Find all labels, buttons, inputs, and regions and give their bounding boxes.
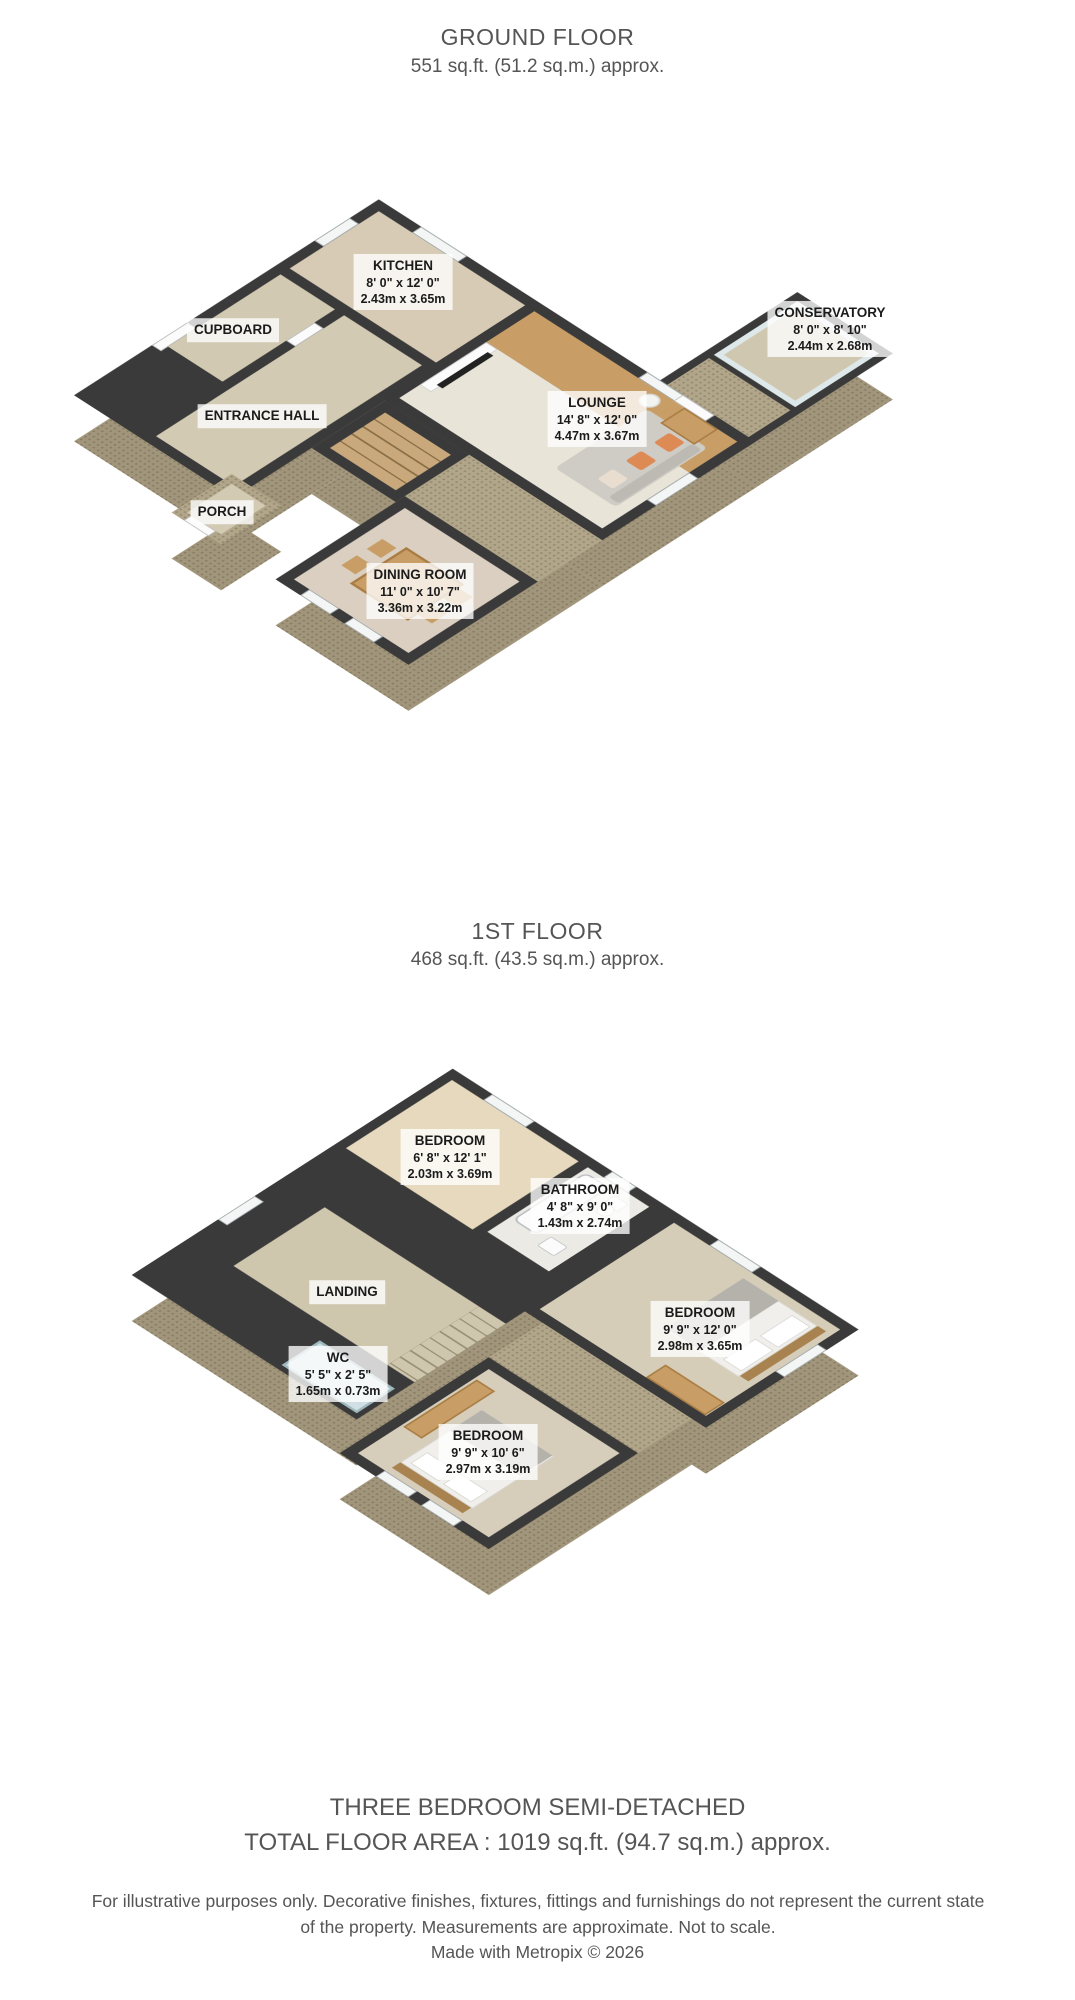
label-wc: WC 5' 5" x 2' 5" 1.65m x 0.73m [289, 1346, 388, 1402]
label-bedroom-right: BEDROOM 9' 9" x 12' 0" 2.98m x 3.65m [651, 1301, 750, 1357]
label-kitchen: KITCHEN 8' 0" x 12' 0" 2.43m x 3.65m [354, 254, 453, 310]
floorplan-page: GROUND FLOOR 551 sq.ft. (51.2 sq.m.) app… [0, 0, 1075, 2000]
metropix-credit: Made with Metropix © 2026 [0, 1942, 1075, 1963]
label-cupboard: CUPBOARD [187, 318, 279, 342]
label-landing: LANDING [309, 1280, 385, 1304]
disclaimer-text: For illustrative purposes only. Decorati… [88, 1888, 988, 1941]
label-dining-room: DINING ROOM 11' 0" x 10' 7" 3.36m x 3.22… [367, 563, 474, 619]
label-bedroom-back: BEDROOM 6' 8" x 12' 1" 2.03m x 3.69m [401, 1129, 500, 1185]
first-floor-title: 1ST FLOOR [0, 918, 1075, 945]
first-floor-subtitle: 468 sq.ft. (43.5 sq.m.) approx. [0, 949, 1075, 971]
ground-floor-plan [170, 0, 770, 738]
label-porch: PORCH [191, 500, 254, 524]
label-bathroom: BATHROOM 4' 8" x 9' 0" 1.43m x 2.74m [531, 1178, 630, 1234]
label-bedroom-front: BEDROOM 9' 9" x 10' 6" 2.97m x 3.19m [439, 1424, 538, 1480]
total-floor-area: TOTAL FLOOR AREA : 1019 sq.ft. (94.7 sq.… [0, 1829, 1075, 1857]
label-lounge: LOUNGE 14' 8" x 12' 0" 4.47m x 3.67m [548, 391, 647, 447]
label-conservatory: CONSERVATORY 8' 0" x 8' 10" 2.44m x 2.68… [767, 301, 892, 357]
property-type: THREE BEDROOM SEMI-DETACHED [0, 1794, 1075, 1822]
label-entrance-hall: ENTRANCE HALL [198, 404, 327, 428]
